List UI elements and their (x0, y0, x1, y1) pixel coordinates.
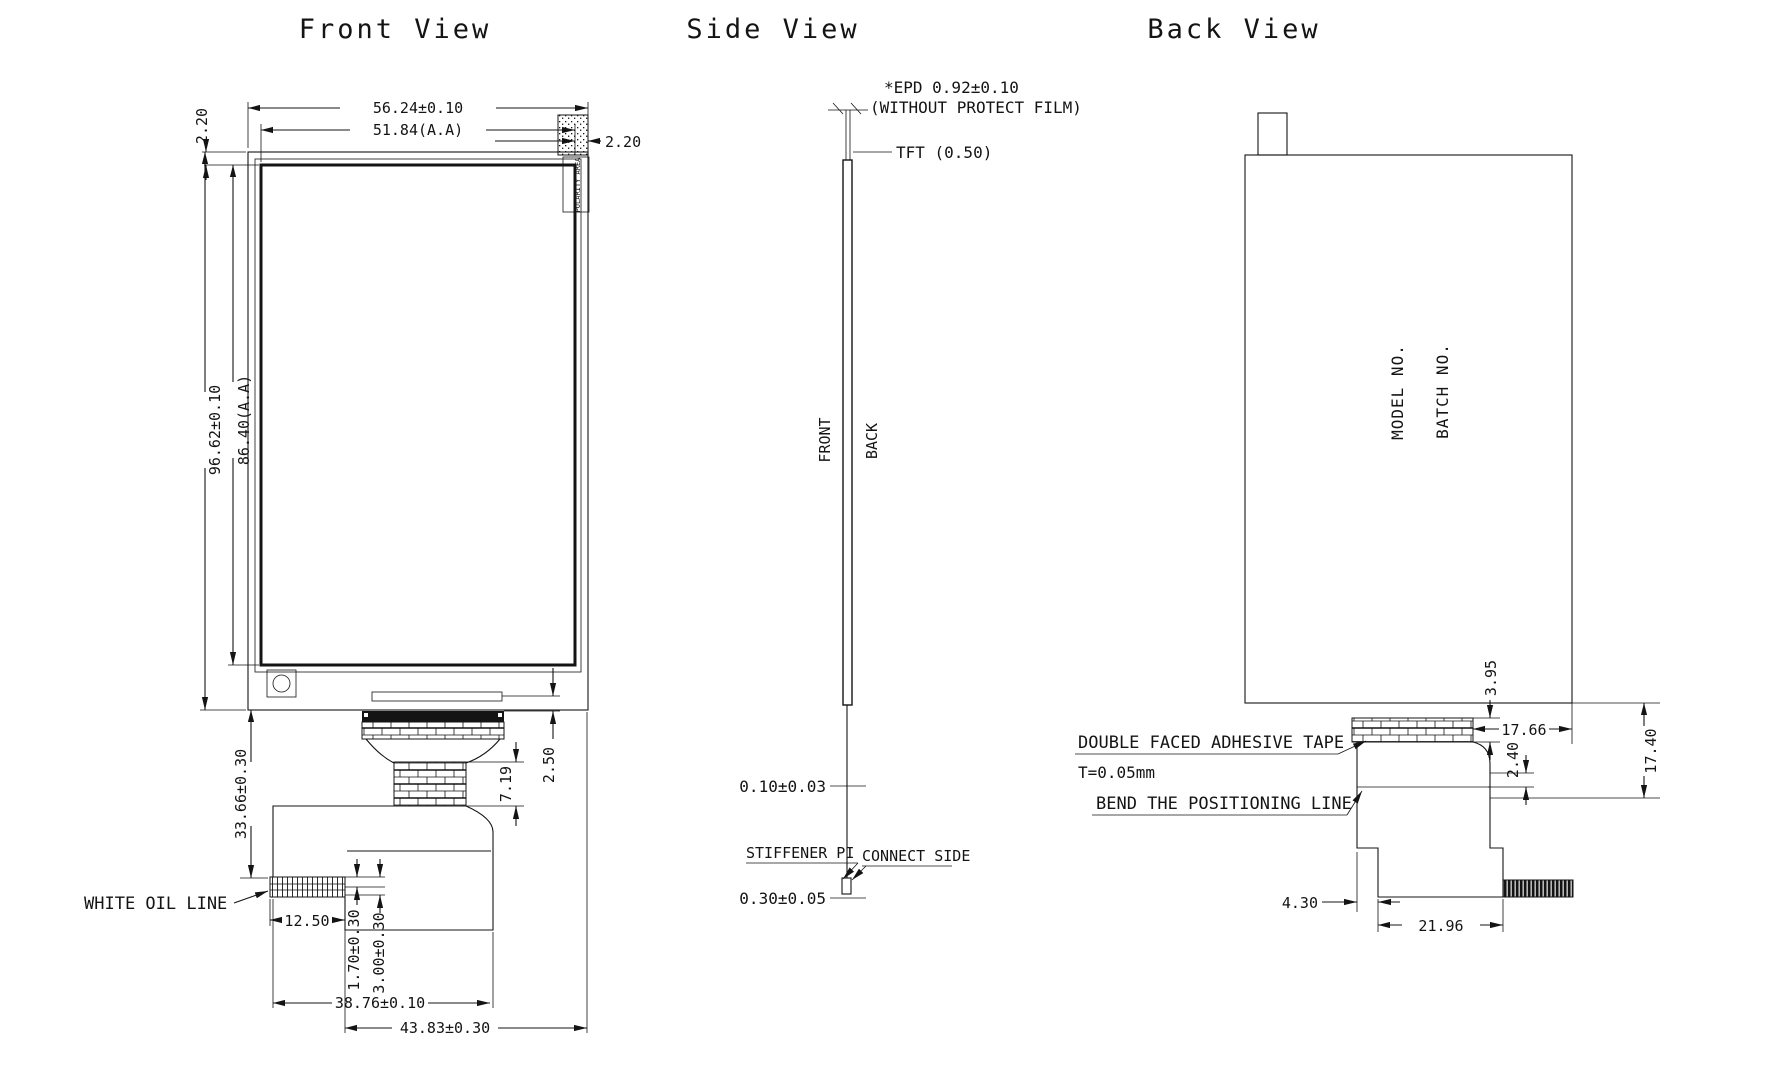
film-thickness-label: 0.10±0.03 (739, 777, 826, 796)
front-fpc-band (362, 722, 504, 739)
dim-overall-width: 56.24±0.10 (248, 99, 588, 117)
side-epd-tick (828, 103, 868, 114)
tft-thickness-label: TFT (0.50) (896, 143, 992, 162)
front-fpc-block (394, 762, 466, 806)
dim-aa-height: 86.40(A.A) (233, 165, 253, 665)
epd-thickness-label: *EPD 0.92±0.10 (884, 78, 1019, 97)
drawing-sheet: Front View Side View Back View POLARITY … (0, 0, 1775, 1077)
dim-tail-width-b-text: 43.83±0.30 (400, 1019, 490, 1037)
dim-aa-height-text: 86.40(A.A) (235, 375, 253, 465)
connect-side-label: CONNECT SIDE (862, 847, 970, 865)
front-panel-outline (248, 152, 588, 710)
side-view: *EPD 0.92±0.10 (WITHOUT PROTECT FILM) TF… (739, 78, 1082, 908)
front-view-title: Front View (299, 14, 492, 45)
white-oil-line-callout: WHITE OIL LINE (84, 891, 268, 914)
white-oil-line-label: WHITE OIL LINE (84, 894, 227, 914)
front-view: POLARITY AREA 56.24±0.10 51.84(A.A) 2.20 (84, 99, 641, 1037)
dim-tail-width-b: 43.83±0.30 (345, 1019, 587, 1037)
dim-overall-width-text: 56.24±0.10 (373, 99, 463, 117)
adhesive-tape-callout: DOUBLE FACED ADHESIVE TAPE T=0.05mm (1075, 733, 1366, 782)
dim-tail-width-a: 38.76±0.10 (273, 994, 490, 1012)
front-fpc-neck (366, 739, 500, 763)
dim-bend-offset-text: 2.40 (1504, 742, 1522, 778)
dim-tail-width: 21.96 (1378, 917, 1503, 935)
connect-side-callout: CONNECT SIDE (852, 847, 970, 880)
stiffener-label: STIFFENER PI (746, 844, 854, 862)
model-no-label: MODEL NO. (1388, 344, 1407, 440)
dim-tape-to-edge: 17.66 (1473, 721, 1572, 739)
polarity-area-label: POLARITY AREA (574, 157, 582, 213)
side-glass-section (843, 160, 852, 705)
back-adhesive-band (1352, 718, 1473, 742)
dim-border-top: 2.20 (193, 108, 211, 180)
dim-tail-width-a-text: 38.76±0.10 (335, 994, 425, 1012)
side-back-label: BACK (863, 423, 881, 459)
side-view-title: Side View (686, 14, 859, 45)
front-bonding-band (362, 711, 504, 722)
dim-bond-depth-text: 7.19 (497, 766, 515, 802)
dim-finger-b-text: 3.00±0.30 (370, 912, 388, 993)
bend-line-callout: BEND THE POSITIONING LINE (1092, 791, 1362, 815)
dim-aa-width-text: 51.84(A.A) (373, 121, 463, 139)
dim-finger-b: 3.00±0.30 (370, 859, 388, 994)
batch-no-label: BATCH NO. (1433, 343, 1452, 439)
dim-fpc-length: 33.66±0.30 (232, 710, 251, 878)
dim-finger-a-text: 1.70±0.30 (345, 909, 363, 990)
epd-note-label: (WITHOUT PROTECT FILM) (870, 98, 1082, 117)
dim-bond-depth: 7.19 (497, 742, 516, 826)
dim-bend-offset: 2.40 (1504, 742, 1526, 805)
dim-aa-width: 51.84(A.A) (261, 121, 575, 139)
dim-fpc-length-text: 33.66±0.30 (232, 749, 250, 839)
stiffener-thickness-label: 0.30±0.05 (739, 889, 826, 908)
dim-border-top-text: 2.20 (193, 108, 211, 144)
front-driver-ic-outline (372, 692, 502, 701)
back-connector-fingers (1503, 880, 1573, 897)
front-active-area (261, 165, 575, 665)
back-view: MODEL NO. BATCH NO. 3.95 17.66 2.40 17.4… (1075, 113, 1660, 935)
dim-tape-to-edge-text: 17.66 (1501, 721, 1546, 739)
front-polarity-hatch (558, 115, 588, 155)
back-top-tab (1258, 113, 1287, 155)
dim-finger-a: 1.70±0.30 (345, 859, 363, 991)
back-panel-outline (1245, 155, 1572, 703)
side-film-lines (846, 110, 850, 160)
front-alignment-mark-circle (273, 675, 290, 692)
dim-bond-offset-text: 2.50 (540, 747, 558, 783)
adhesive-tape-label: DOUBLE FACED ADHESIVE TAPE (1078, 733, 1344, 753)
bend-line-label: BEND THE POSITIONING LINE (1096, 794, 1352, 814)
dim-bond-offset: 2.50 (540, 668, 558, 783)
side-front-label: FRONT (816, 417, 834, 462)
engineering-drawing: Front View Side View Back View POLARITY … (0, 0, 1775, 1077)
dim-tape-height: 3.95 (1482, 660, 1500, 760)
dim-tail-drop-text: 17.40 (1642, 728, 1660, 773)
dim-overall-height: 96.62±0.10 (205, 152, 224, 710)
dim-tail-step-width: 12.50 (270, 912, 345, 930)
front-extension-lines (200, 102, 588, 1033)
back-view-title: Back View (1147, 14, 1320, 45)
front-polarizer-outline (255, 159, 581, 672)
dim-tail-step-text: 4.30 (1282, 894, 1318, 912)
front-bonding-notch-left (364, 713, 368, 717)
stiffener-callout: STIFFENER PI (746, 844, 858, 879)
front-bonding-notch-right (498, 713, 502, 717)
dim-tail-drop: 17.40 (1642, 703, 1660, 798)
dim-overall-height-text: 96.62±0.10 (206, 385, 224, 475)
dim-border-right-text: 2.20 (605, 133, 641, 151)
dim-tape-height-text: 3.95 (1482, 660, 1500, 696)
back-fpc-tail-outline (1357, 742, 1503, 897)
dim-tail-step-width-text: 12.50 (284, 912, 329, 930)
front-alignment-mark-box (267, 670, 296, 697)
side-stiffener-block (842, 878, 851, 894)
dim-tail-width-text: 21.96 (1418, 917, 1463, 935)
front-fpc-finger-strip (270, 877, 345, 897)
adhesive-tape-thickness-label: T=0.05mm (1078, 763, 1155, 782)
